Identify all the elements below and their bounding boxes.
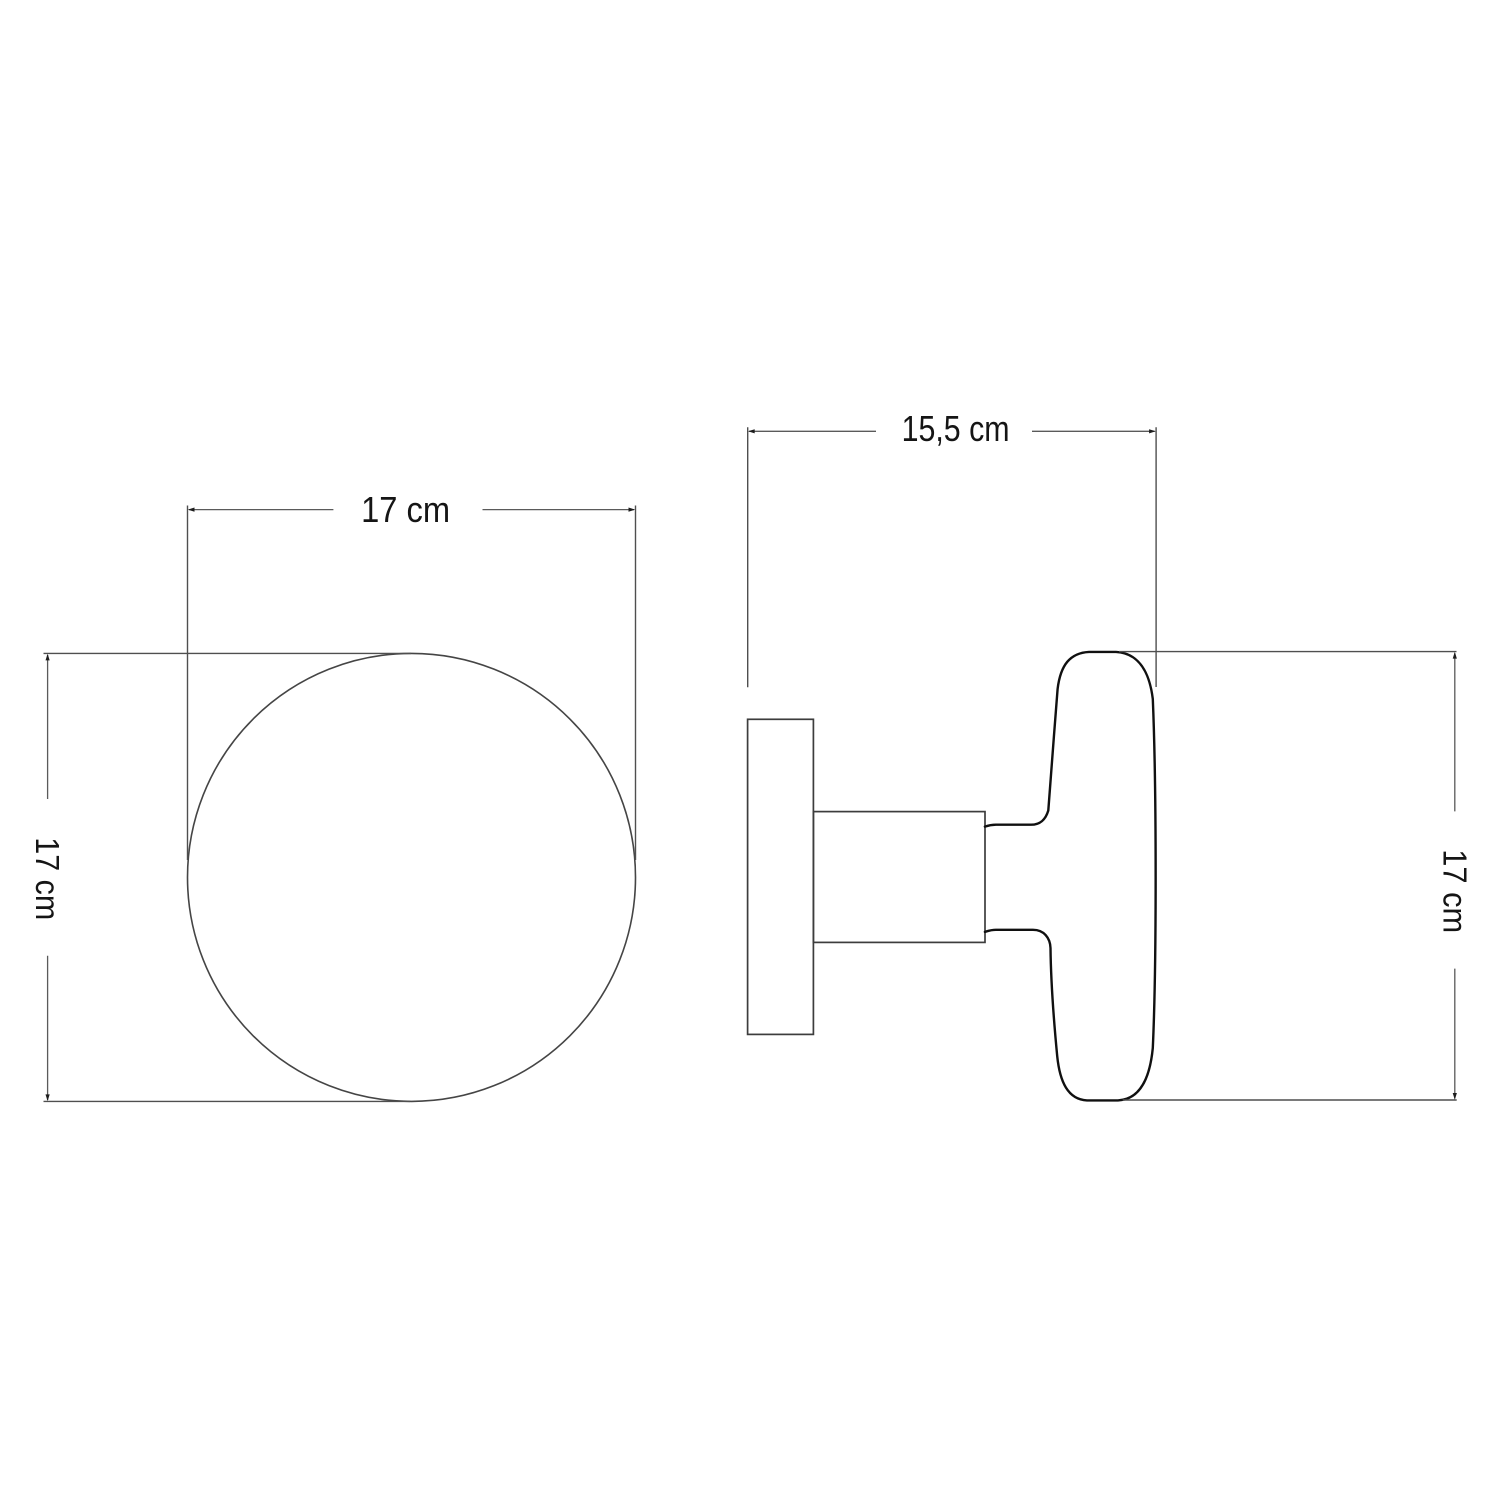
svg-text:17 cm: 17 cm	[29, 837, 66, 920]
svg-text:15,5 cm: 15,5 cm	[902, 408, 1010, 449]
svg-text:17 cm: 17 cm	[361, 489, 450, 530]
svg-text:17 cm: 17 cm	[1437, 849, 1474, 933]
